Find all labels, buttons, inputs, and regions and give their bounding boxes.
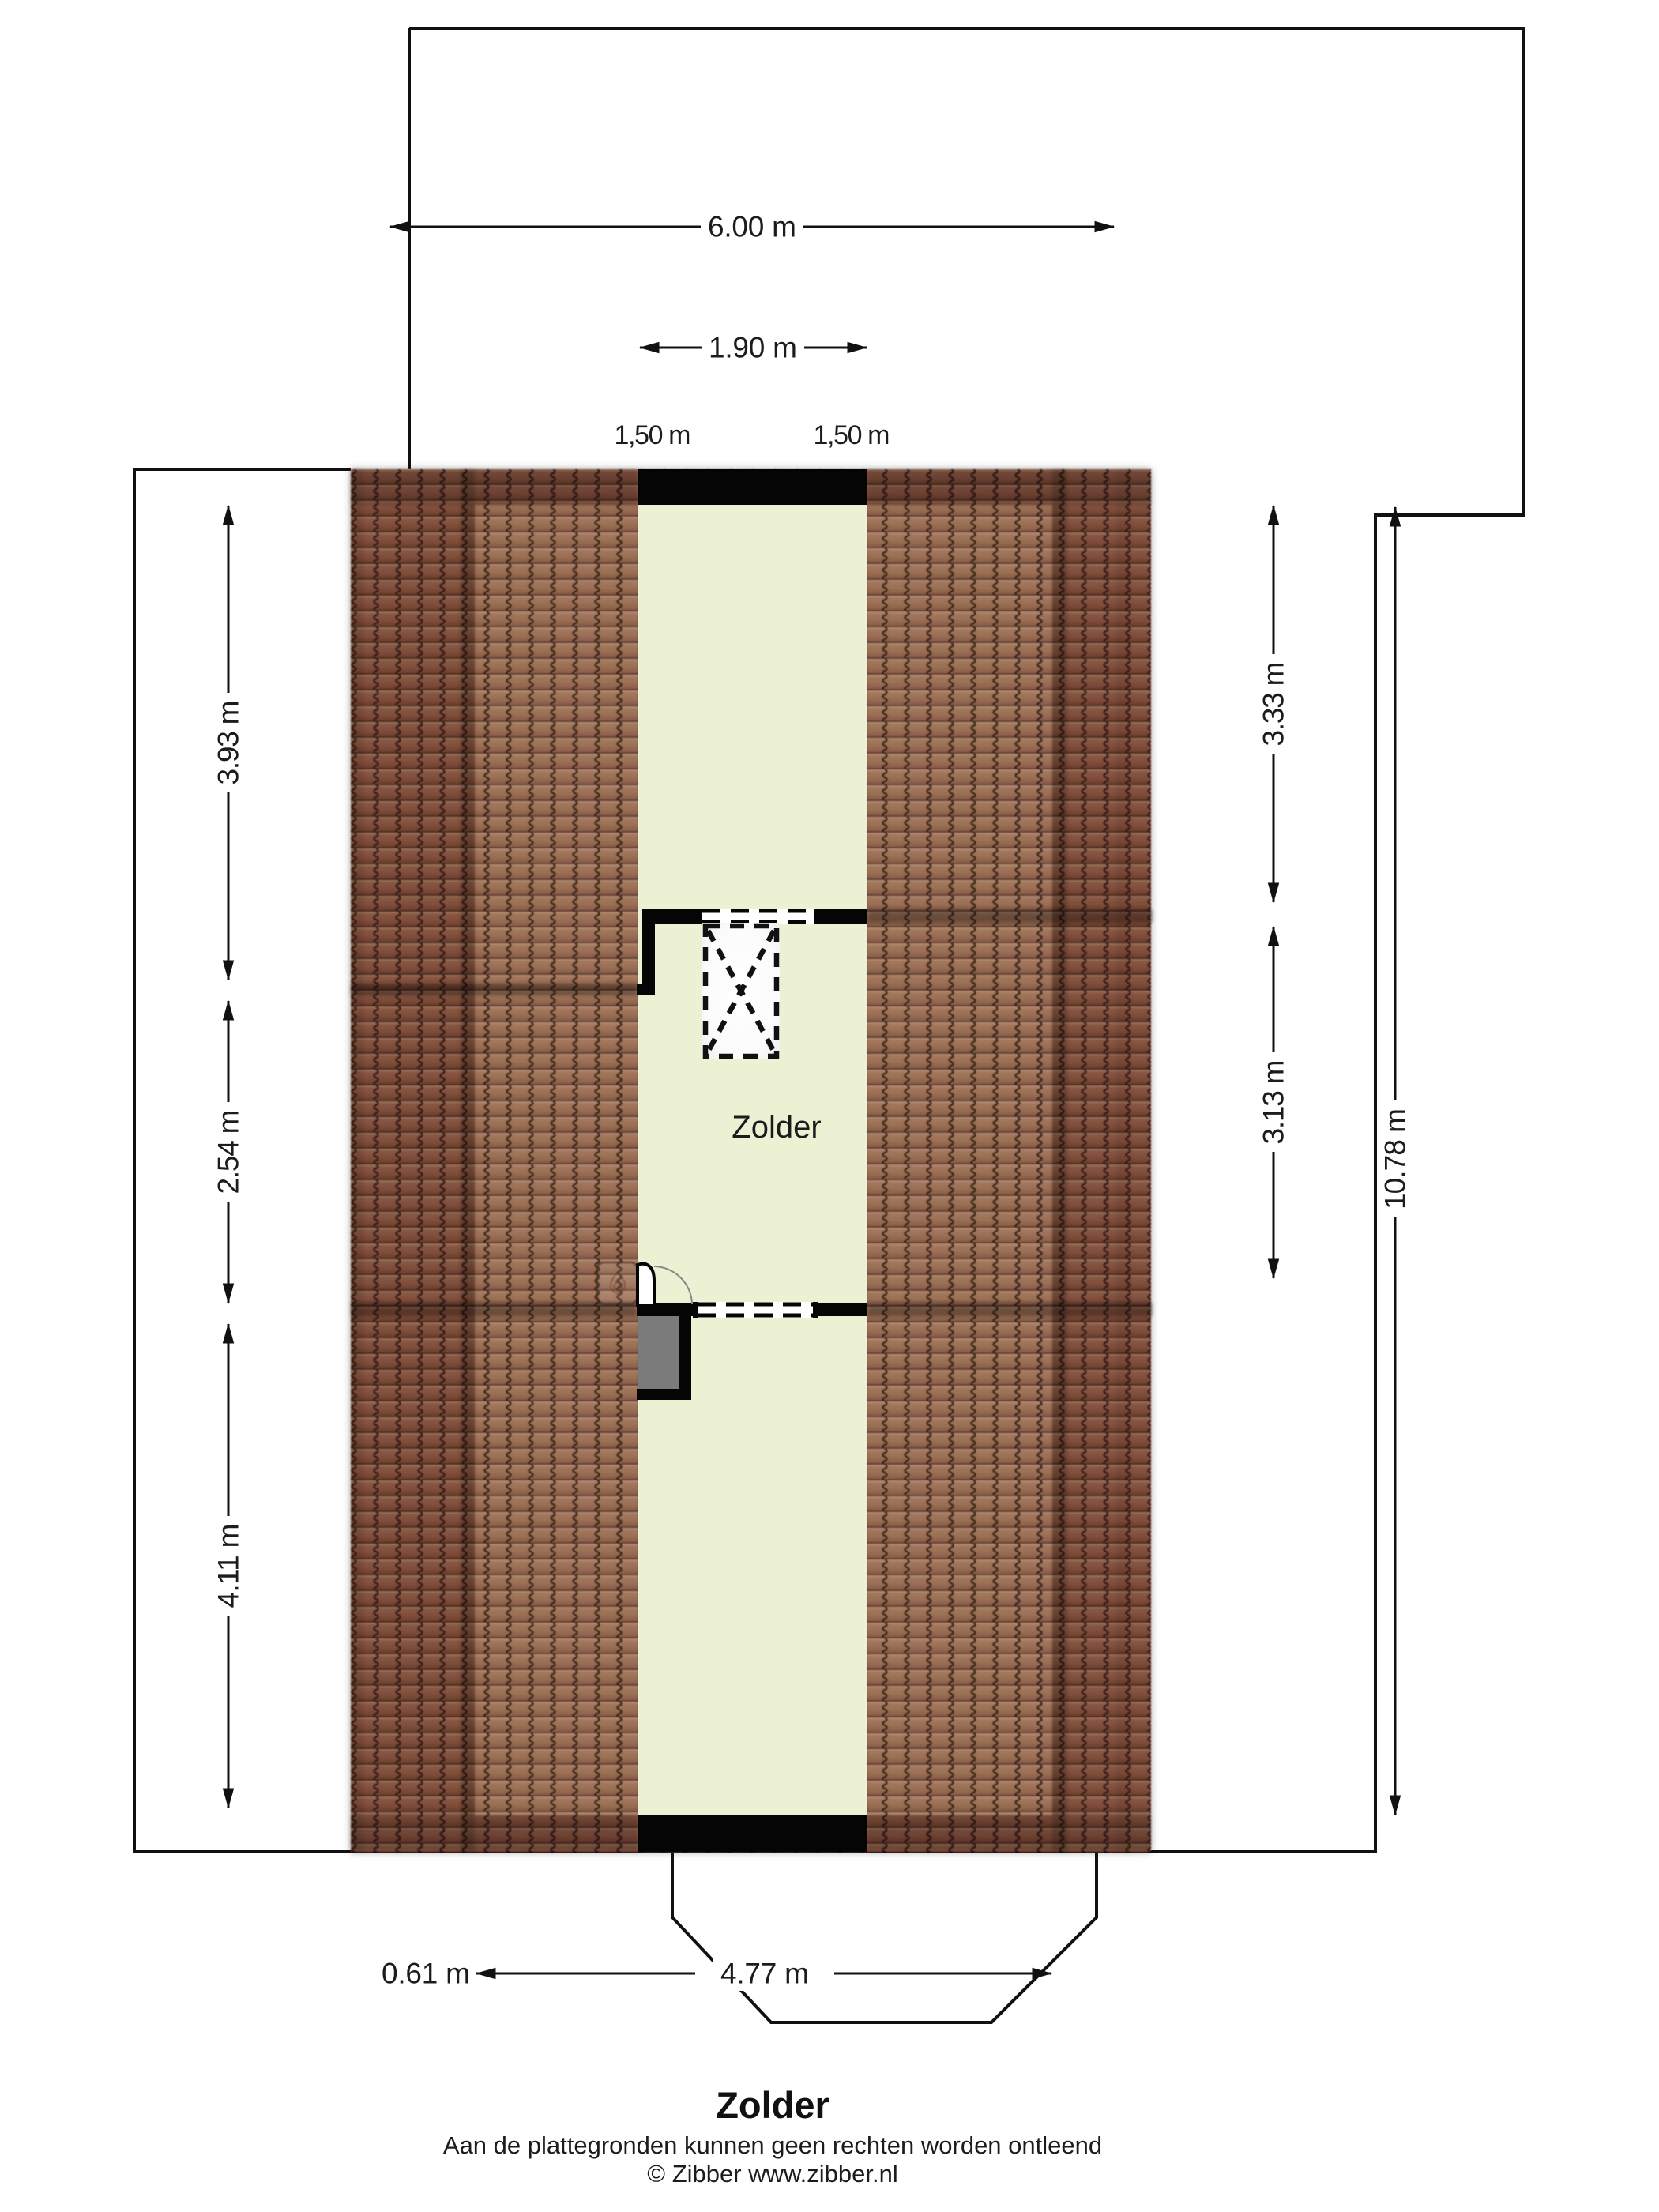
svg-text:4.77 m: 4.77 m [720,1958,809,1990]
svg-text:Zolder: Zolder [716,2084,829,2126]
svg-text:3.13 m: 3.13 m [1258,1060,1290,1145]
svg-text:Aan de plattegronden kunnen ge: Aan de plattegronden kunnen geen rechten… [443,2131,1102,2159]
svg-text:0.61 m: 0.61 m [382,1958,470,1990]
svg-text:© Zibber www.zibber.nl: © Zibber www.zibber.nl [647,2160,897,2188]
svg-text:3.93 m: 3.93 m [213,701,245,785]
svg-text:1,50 m: 1,50 m [615,420,691,450]
svg-text:10.78 m: 10.78 m [1379,1108,1412,1209]
svg-text:1,50 m: 1,50 m [814,420,890,450]
svg-text:1.90 m: 1.90 m [709,332,797,364]
svg-text:6.00 m: 6.00 m [708,211,796,243]
svg-text:Zolder: Zolder [732,1110,821,1145]
svg-text:3.33 m: 3.33 m [1258,662,1290,747]
svg-text:4.11 m: 4.11 m [213,1524,245,1608]
svg-text:2.54 m: 2.54 m [213,1110,245,1194]
